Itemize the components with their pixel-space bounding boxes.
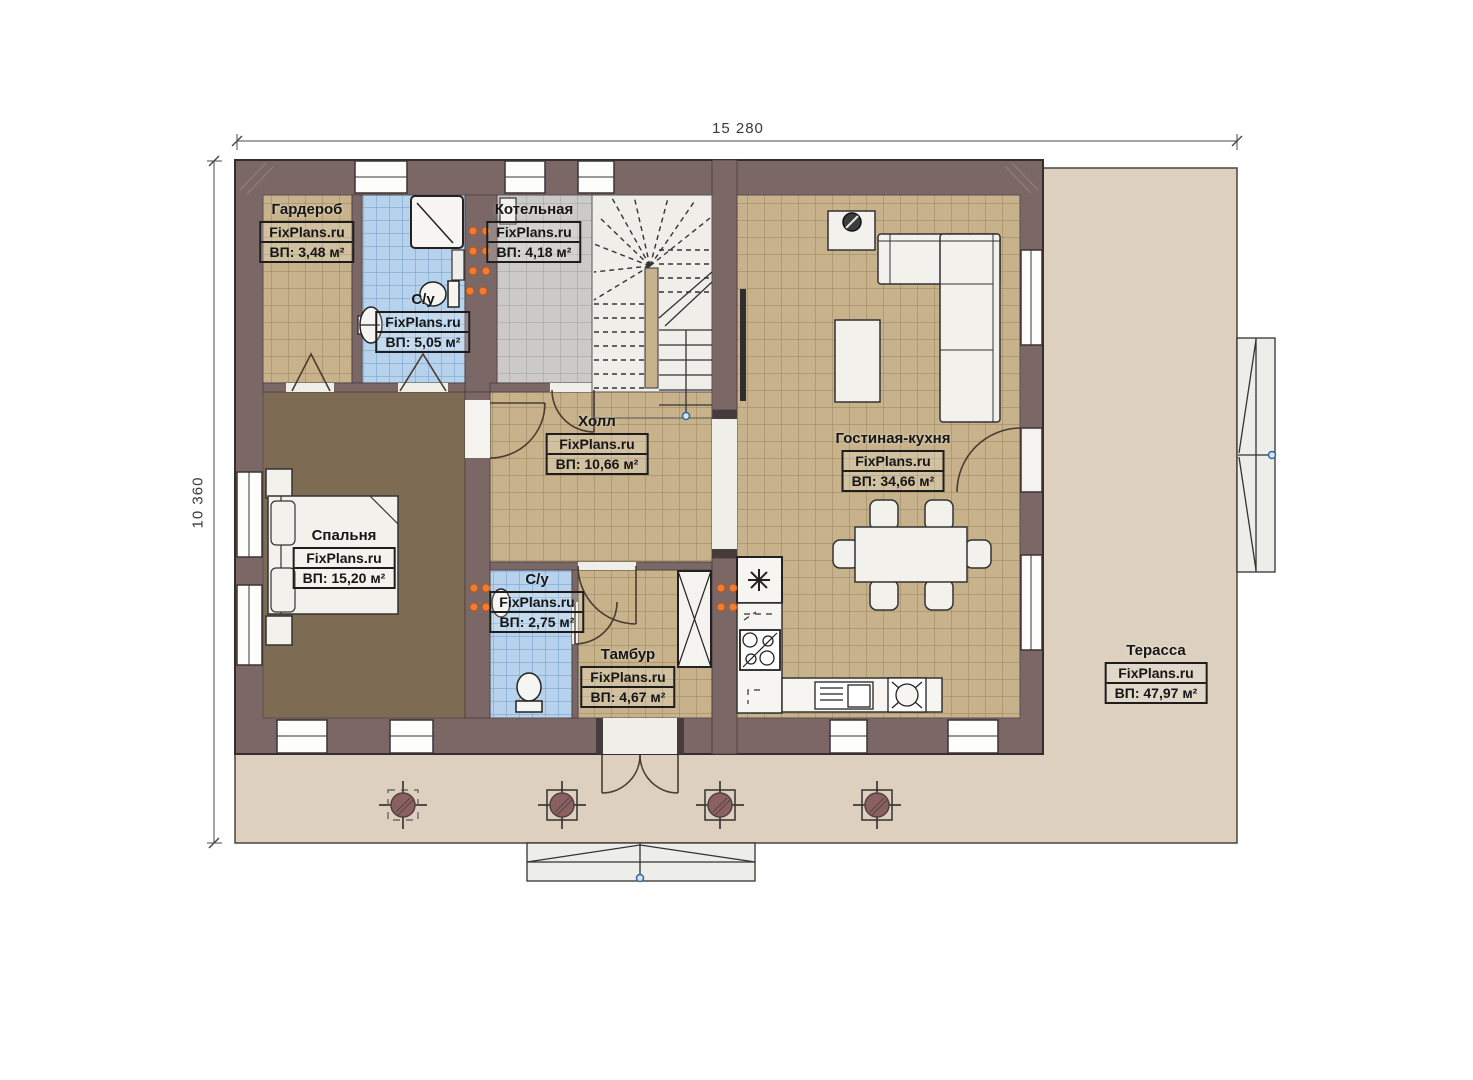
window-right: [1021, 250, 1042, 650]
water-heater: [452, 250, 464, 280]
room-label-wardrobe: Гардероб FixPlans.ru ВП: 3,48 м²: [259, 201, 354, 263]
chair: [870, 580, 898, 610]
dining-table: [855, 527, 967, 582]
room-label-boiler: Котельная FixPlans.ru ВП: 4,18 м²: [486, 201, 581, 263]
room-label-terrace: Терасса FixPlans.ru ВП: 47,97 м²: [1105, 642, 1208, 704]
chair: [965, 540, 991, 568]
room-label-hall: Холл FixPlans.ru ВП: 10,66 м²: [546, 413, 649, 475]
terrace-steps: [1237, 338, 1276, 572]
dimension-height: 10 360: [189, 477, 206, 529]
shower: [411, 196, 463, 248]
watermark: FixPlans.ru: [582, 668, 673, 688]
dishwasher: [815, 682, 873, 709]
watermark: FixPlans.ru: [548, 435, 647, 455]
chair: [870, 500, 898, 530]
pillow: [271, 501, 295, 545]
room-label-bedroom: Спальня FixPlans.ru ВП: 15,20 м²: [293, 527, 396, 589]
floor-plan-drawing: [0, 0, 1473, 1080]
watermark: FixPlans.ru: [377, 313, 468, 333]
kitchen-sink: [888, 678, 926, 712]
room-label-bath-bottom: С/у FixPlans.ru ВП: 2,75 м²: [489, 571, 584, 633]
room-label-tambur: Тамбур FixPlans.ru ВП: 4,67 м²: [580, 646, 675, 708]
dimension-width: 15 280: [712, 120, 764, 137]
pillow: [271, 568, 295, 612]
living-radiator: [740, 289, 746, 401]
watermark: FixPlans.ru: [488, 223, 579, 243]
watermark: FixPlans.ru: [261, 223, 352, 243]
room-label-living-kitchen: Гостиная-кухня FixPlans.ru ВП: 34,66 м²: [833, 430, 954, 492]
watermark: FixPlans.ru: [844, 452, 943, 472]
chair: [925, 580, 953, 610]
watermark: FixPlans.ru: [491, 593, 582, 613]
entrance-opening: [596, 718, 684, 754]
nightstand: [266, 616, 292, 645]
nightstand: [266, 469, 292, 498]
watermark: FixPlans.ru: [1107, 664, 1206, 684]
entrance-steps: [527, 843, 755, 882]
closet: [678, 571, 711, 667]
toilet-bottom-tank: [516, 701, 542, 712]
room-label-bath-top: С/у FixPlans.ru ВП: 5,05 м²: [375, 291, 470, 353]
coffee-table: [835, 320, 880, 402]
toilet-bottom-bowl: [517, 673, 541, 701]
watermark: FixPlans.ru: [295, 549, 394, 569]
chair: [925, 500, 953, 530]
floor-plan-page: 15 280 10 360 Гардероб FixPlans.ru ВП: 3…: [0, 0, 1473, 1080]
